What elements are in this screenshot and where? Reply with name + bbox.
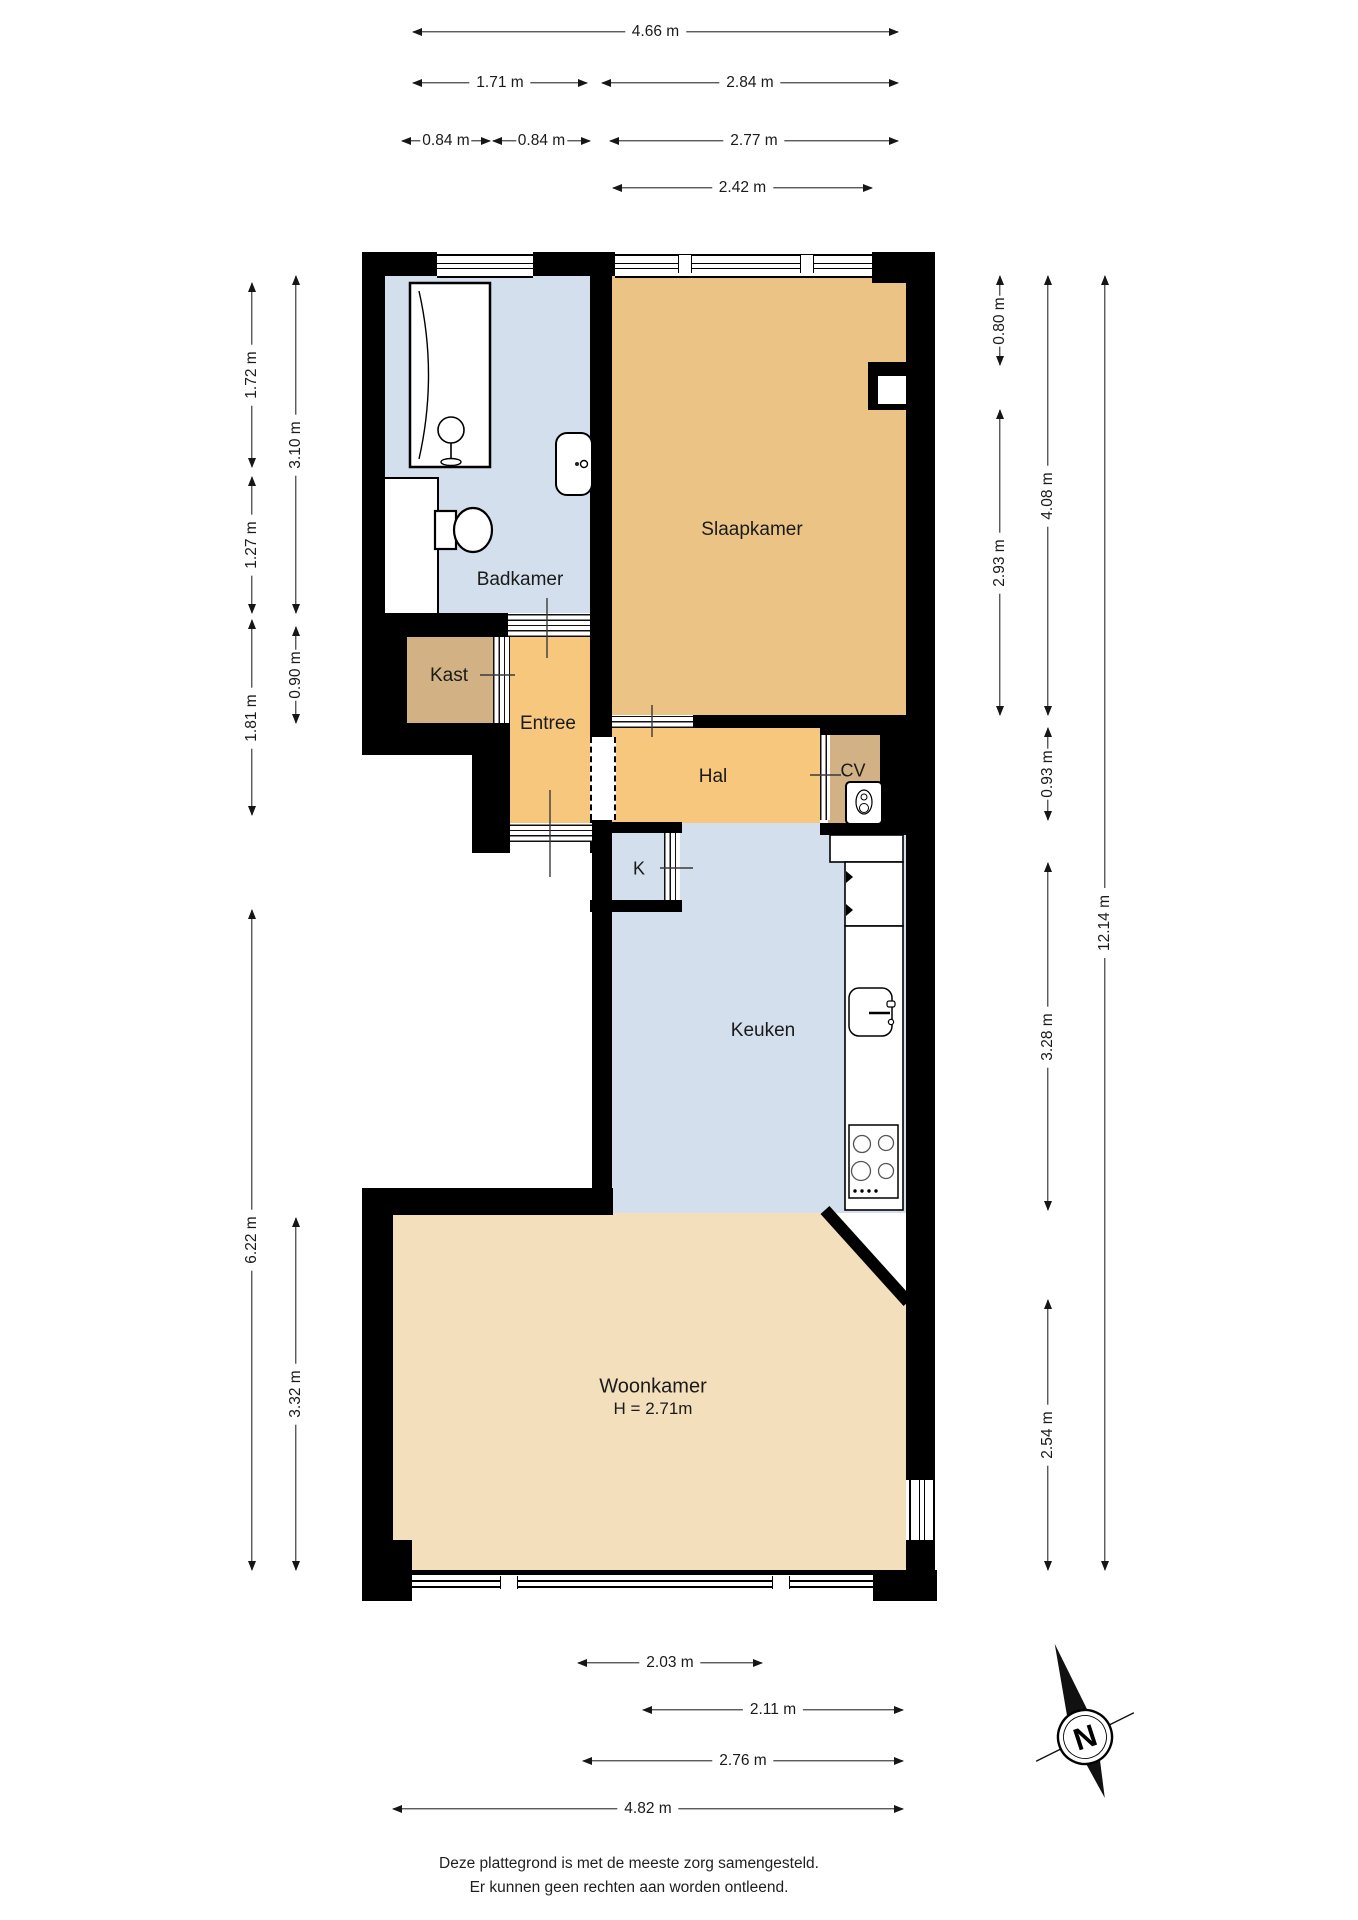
dim-bottom-211: 2.11 m (643, 1702, 903, 1718)
cv-label: CV (840, 761, 865, 782)
badkamer-label: Badkamer (477, 569, 564, 591)
dim-label: 0.84 m (420, 132, 471, 150)
window-glass-line (437, 263, 533, 269)
dim-right-328: 3.28 m (1040, 863, 1056, 1210)
dim-label: 0.93 m (1039, 748, 1057, 799)
dim-top-277: 2.77 m (610, 133, 898, 149)
dim-bottom-203: 2.03 m (578, 1655, 762, 1671)
dim-label: 0.90 m (287, 649, 305, 700)
window-glass-line (919, 1480, 925, 1540)
woonkamer-side-window (909, 1480, 935, 1540)
dim-label: 3.10 m (287, 414, 305, 475)
wall-hal-k-top (590, 822, 682, 833)
dim-label: 4.66 m (625, 23, 686, 41)
dim-label: 1.71 m (469, 74, 530, 92)
dim-top-window: 2.42 m (613, 180, 872, 196)
wall-top-left (362, 252, 437, 276)
dim-label: 4.82 m (617, 1800, 678, 1818)
wall-bottomleft-block (362, 1540, 412, 1601)
dim-label: 2.77 m (723, 132, 784, 150)
wall-badkamer-bottom (385, 613, 508, 637)
entree-hal-opening (590, 737, 616, 820)
wall-cv-right (880, 735, 906, 823)
kast-door (493, 637, 510, 723)
dim-top-badkamer: 1.71 m (413, 75, 587, 91)
window-frame-line (412, 1570, 873, 1575)
wall-right-lower (906, 1540, 935, 1572)
dim-label: 4.08 m (1039, 465, 1057, 526)
dim-left-310: 3.10 m (288, 276, 304, 613)
wall-top-mid (533, 252, 615, 276)
window-mullion (678, 255, 692, 273)
badkamer-window (437, 254, 533, 278)
dim-right-408: 4.08 m (1040, 276, 1056, 715)
keuken-floor (612, 823, 906, 1213)
window-glass-line (615, 263, 872, 269)
slaapkamer-window (615, 254, 872, 278)
bathroom-shaft (385, 477, 439, 617)
badkamer-door (508, 613, 590, 637)
dim-left-127: 1.27 m (244, 477, 260, 613)
wall-cv-top (820, 715, 906, 735)
dim-label: 0.80 m (991, 295, 1009, 346)
dim-right-080: 0.80 m (992, 276, 1008, 365)
dim-top-slaapkamer: 2.84 m (602, 75, 898, 91)
window-mullion (772, 1576, 790, 1589)
window-glass-line (412, 1580, 873, 1582)
compass: N (1003, 1627, 1156, 1814)
wall-woonkamer-left (362, 1188, 393, 1570)
hal-label: Hal (699, 766, 728, 788)
slaapkamer-floor (612, 276, 906, 715)
wall-k-bottom (590, 900, 682, 912)
dim-label: 1.81 m (243, 687, 261, 748)
dim-right-total: 12.14 m (1097, 276, 1113, 1570)
dim-top-084a: 0.84 m (402, 133, 490, 149)
window-glass-line (412, 1586, 873, 1588)
kast-label: Kast (430, 665, 468, 687)
entree-label: Entree (520, 713, 576, 735)
window-mullion (500, 1576, 518, 1589)
disclaimer-line-1: Deze plattegrond is met de meeste zorg s… (279, 1852, 979, 1876)
wall-divider-bad-slaap (590, 276, 612, 737)
dim-right-293: 2.93 m (992, 410, 1008, 715)
dim-label: 0.84 m (516, 132, 567, 150)
compass-north-label: N (1069, 1717, 1101, 1757)
dim-label: 2.54 m (1039, 1404, 1057, 1465)
dim-label: 1.72 m (243, 344, 261, 405)
dim-label: 3.32 m (287, 1363, 305, 1424)
dim-top-084b: 0.84 m (493, 133, 590, 149)
niche-recess (878, 376, 906, 404)
wall-under-kast (362, 723, 510, 755)
dim-label: 2.93 m (991, 532, 1009, 593)
wall-bottomright-block (873, 1570, 937, 1601)
dim-label: 2.11 m (743, 1701, 803, 1719)
dim-left-181: 1.81 m (244, 620, 260, 815)
disclaimer: Deze plattegrond is met de meeste zorg s… (279, 1852, 979, 1900)
dim-label: 2.84 m (719, 74, 780, 92)
dim-left-332: 3.32 m (288, 1218, 304, 1570)
wall-left-upper (362, 275, 385, 615)
dim-top-total: 4.66 m (413, 24, 898, 40)
keuken-label: Keuken (731, 1020, 795, 1042)
dim-label: 2.42 m (712, 179, 773, 197)
dim-label: 12.14 m (1096, 888, 1114, 958)
front-door (510, 823, 592, 842)
dim-left-090: 0.90 m (288, 627, 304, 723)
dim-left-172: 1.72 m (244, 283, 260, 467)
woonkamer-bottom-window (412, 1570, 873, 1589)
woonkamer-label: Woonkamer (599, 1376, 706, 1399)
dim-bottom-276: 2.76 m (583, 1753, 903, 1769)
slaapkamer-door (612, 715, 693, 728)
k-closet-door (664, 833, 680, 900)
cv-door (820, 735, 830, 820)
wall-right-upper (906, 252, 935, 1480)
floorplan-page: { "rooms": { "badkamer": "Badkamer", "sl… (0, 0, 1358, 1920)
wall-cv-bottom (820, 823, 906, 835)
dim-label: 3.28 m (1039, 1006, 1057, 1067)
dim-left-622: 6.22 m (244, 910, 260, 1570)
dim-bottom-482: 4.82 m (393, 1801, 903, 1817)
dim-label: 1.27 m (243, 514, 261, 575)
wall-entree-left (472, 755, 510, 853)
dim-right-093: 0.93 m (1040, 728, 1056, 820)
dim-label: 2.76 m (712, 1752, 773, 1770)
window-mullion (800, 255, 814, 273)
dim-label: 2.03 m (639, 1654, 700, 1672)
dim-label: 6.22 m (243, 1209, 261, 1270)
k-closet-label: K (633, 859, 645, 880)
wall-woonkamer-topleft (393, 1188, 613, 1215)
disclaimer-line-2: Er kunnen geen rechten aan worden ontlee… (279, 1876, 979, 1900)
slaapkamer-label: Slaapkamer (701, 519, 802, 541)
woonkamer-ceiling-label: H = 2.71m (614, 1399, 693, 1419)
dim-right-254: 2.54 m (1040, 1300, 1056, 1570)
